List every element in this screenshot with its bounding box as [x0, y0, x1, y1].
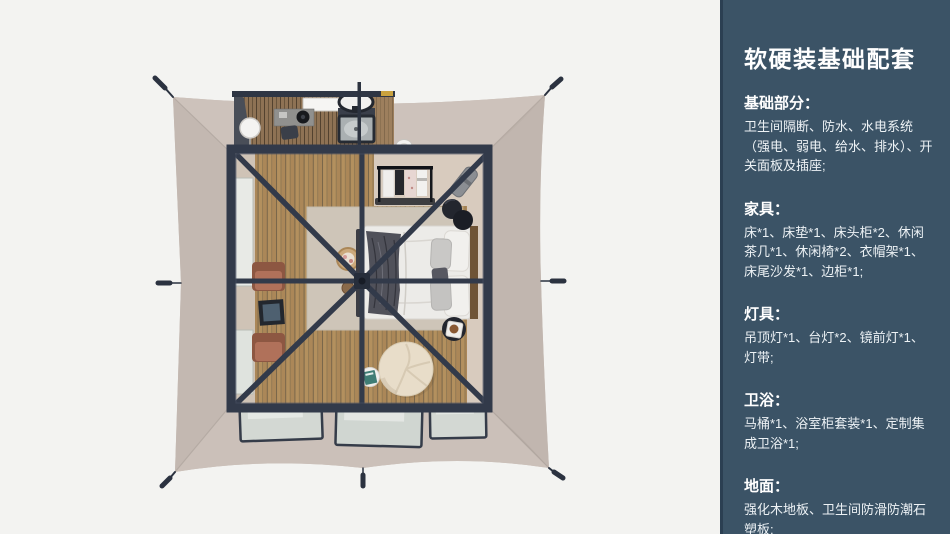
headboard: [470, 226, 478, 319]
yellow-towel: [381, 91, 393, 96]
spec-body: 吊顶灯*1、台灯*2、镜前灯*1、灯带;: [744, 328, 936, 367]
left-window-upper: [235, 178, 253, 286]
spec-body: 床*1、床垫*1、床头柜*2、休闲茶几*1、休闲椅*2、衣帽架*1、床尾沙发*1…: [744, 223, 936, 282]
spec-heading: 基础部分：: [744, 94, 936, 114]
roof-panel-right: [487, 95, 549, 468]
spec-heading: 家具：: [744, 200, 936, 220]
spec-section-lighting: 灯具： 吊顶灯*1、台灯*2、镜前灯*1、灯带;: [744, 305, 936, 367]
slide: 软硬装基础配套 基础部分： 卫生间隔断、防水、水电系统（强电、弱电、给水、排水）…: [0, 0, 950, 534]
spec-body: 卫生间隔断、防水、水电系统（强电、弱电、给水、排水）、开关面板及插座;: [744, 117, 936, 176]
spec-body: 马桶*1、浴室柜套装*1、定制集成卫浴*1;: [744, 414, 936, 453]
tent-floorplan-rendering: [0, 0, 722, 534]
frame-hub: [354, 273, 370, 289]
shower-tray: [339, 116, 374, 142]
spec-section-sanitary: 卫浴： 马桶*1、浴室柜套装*1、定制集成卫浴*1;: [744, 391, 936, 453]
clothes-rack: [375, 166, 435, 205]
spec-section-basics: 基础部分： 卫生间隔断、防水、水电系统（强电、弱电、给水、排水）、开关面板及插座…: [744, 94, 936, 176]
bed: [356, 226, 478, 319]
tea-table: [258, 299, 285, 326]
spec-section-furniture: 家具： 床*1、床垫*1、床头柜*2、休闲茶几*1、休闲椅*2、衣帽架*1、床尾…: [744, 200, 936, 282]
spec-section-flooring: 地面： 强化木地板、卫生间防滑防潮石塑板;: [744, 477, 936, 534]
bathroom-top-beam: [232, 91, 395, 97]
spec-panel: 软硬装基础配套 基础部分： 卫生间隔断、防水、水电系统（强电、弱电、给水、排水）…: [720, 0, 950, 534]
spec-heading: 地面：: [744, 477, 936, 497]
lounge-chair-1: [252, 262, 285, 291]
left-window-lower: [235, 330, 253, 394]
center-ridge-pole: [358, 82, 362, 152]
spec-heading: 卫浴：: [744, 391, 936, 411]
bathroom: [232, 82, 412, 153]
spec-heading: 灯具：: [744, 305, 936, 325]
tray-stool: [442, 317, 466, 341]
panel-title: 软硬装基础配套: [744, 44, 936, 74]
spec-body: 强化木地板、卫生间防滑防潮石塑板;: [744, 500, 936, 534]
